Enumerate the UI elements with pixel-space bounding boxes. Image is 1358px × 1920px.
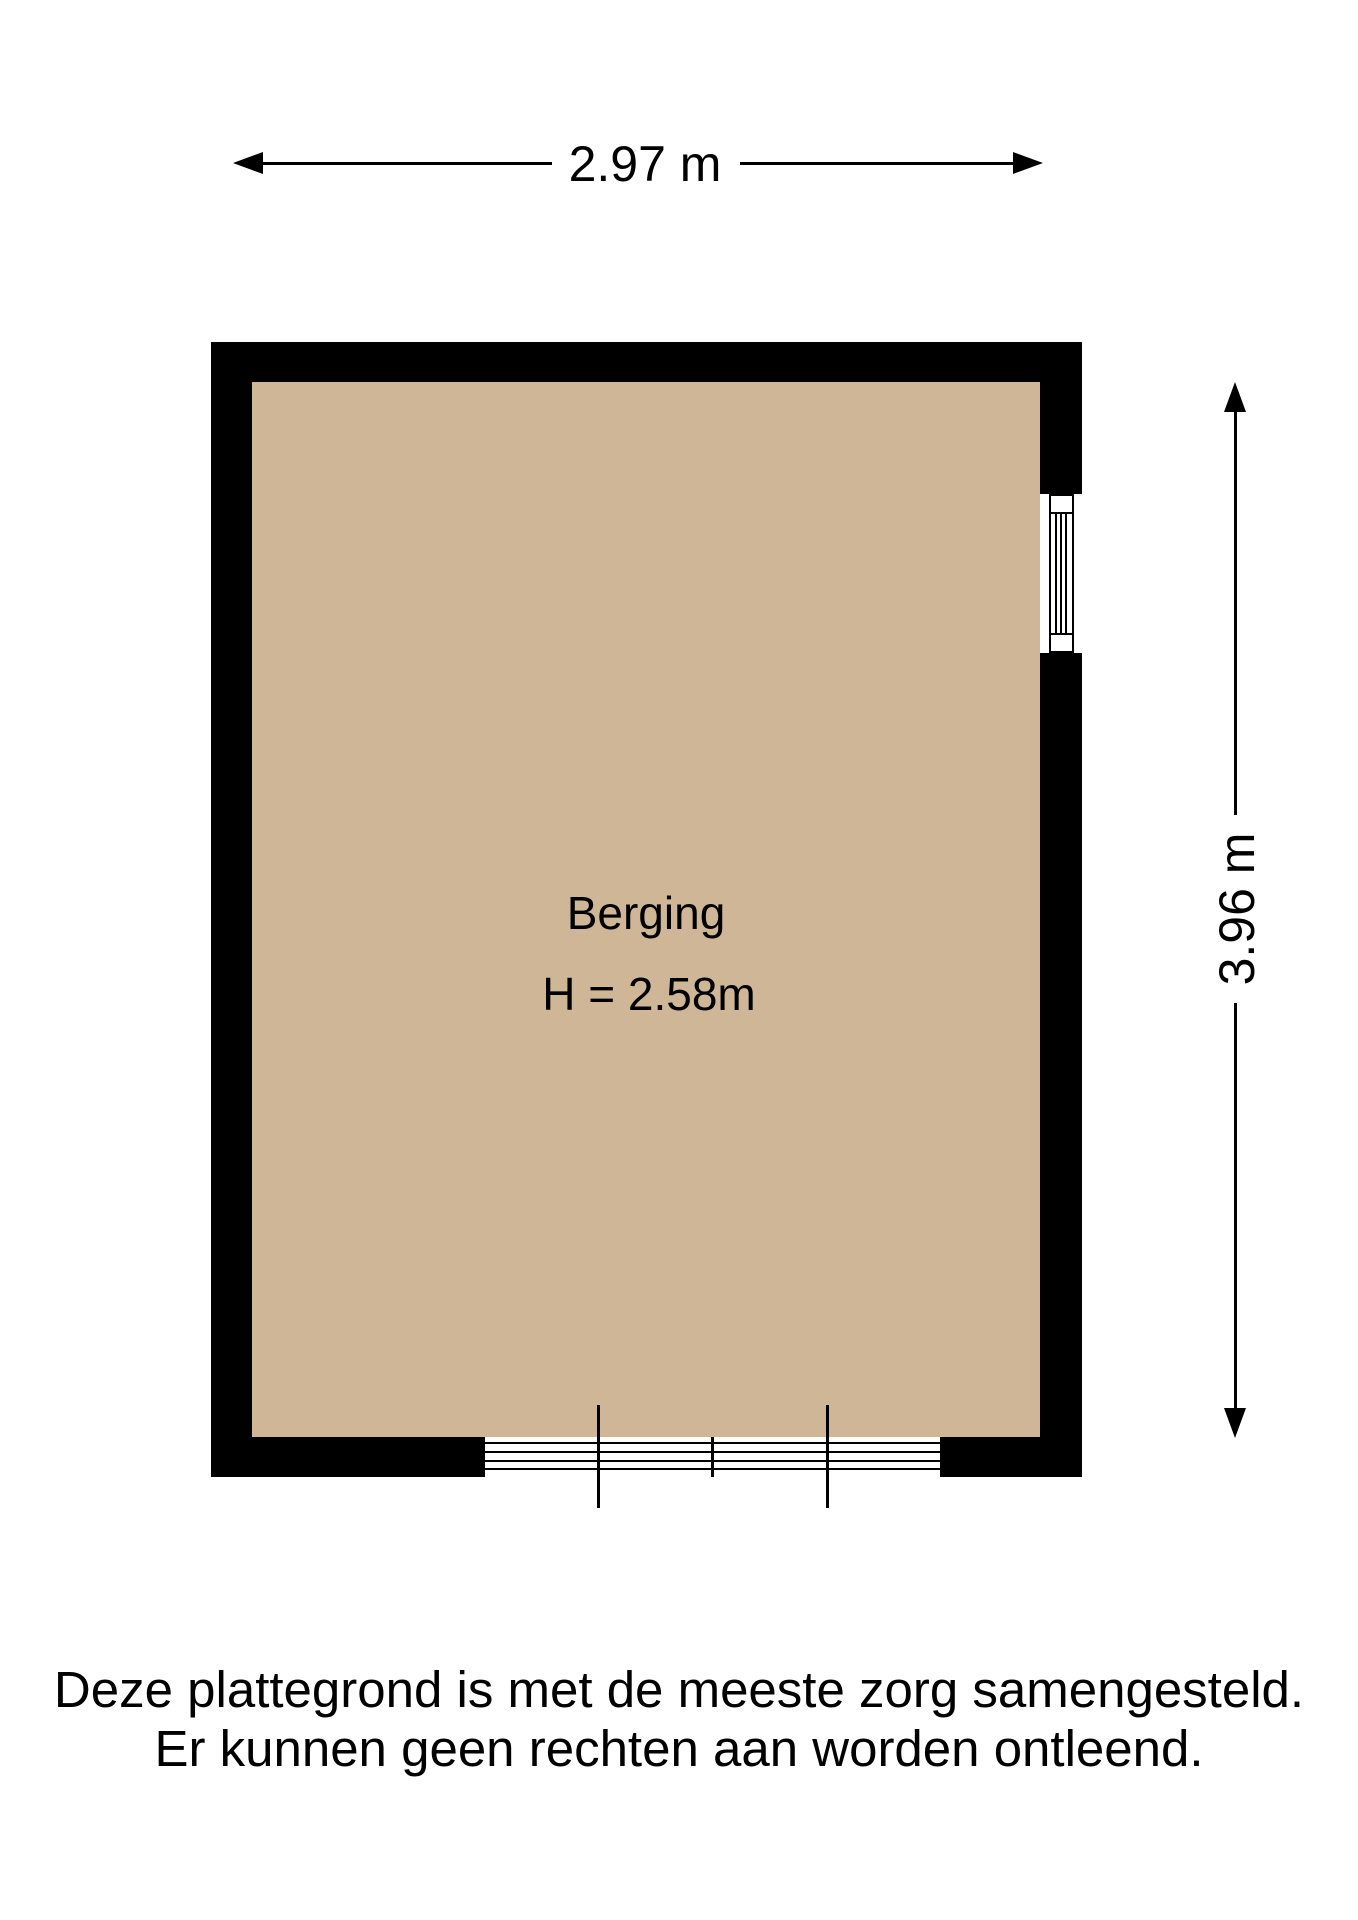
door-post-line [597,1405,600,1508]
dimension-line [1234,1003,1237,1408]
dimension-line [260,162,552,165]
window-icon [1049,494,1074,653]
disclaimer: Deze plattegrond is met de meeste zorg s… [54,1660,1304,1778]
door-post-line [826,1405,829,1508]
window-pane-line [1065,514,1067,633]
door-post-tick [711,1437,714,1477]
room-name-label: Berging [567,886,726,940]
depth-dimension-label: 3.96 m [1208,833,1266,986]
floorplan-page: 2.97 m Berging H = 2.58m 3.96 m Deze pla… [0,0,1358,1920]
window-sill-top [1051,496,1072,514]
window-pane-line [1055,514,1057,633]
width-dimension-label: 2.97 m [569,135,722,193]
arrowhead-right-icon [1013,152,1043,174]
disclaimer-line-2: Er kunnen geen rechten aan worden ontlee… [54,1719,1304,1778]
room-ceiling-height-label: H = 2.58m [542,967,756,1021]
window-pane-line [1060,514,1062,633]
dimension-line [740,162,1013,165]
dimension-line [1234,410,1237,815]
arrowhead-left-icon [233,152,263,174]
arrowhead-down-icon [1224,1408,1246,1438]
disclaimer-line-1: Deze plattegrond is met de meeste zorg s… [54,1660,1304,1719]
window-sill-bottom [1051,633,1072,651]
arrowhead-up-icon [1224,382,1246,412]
